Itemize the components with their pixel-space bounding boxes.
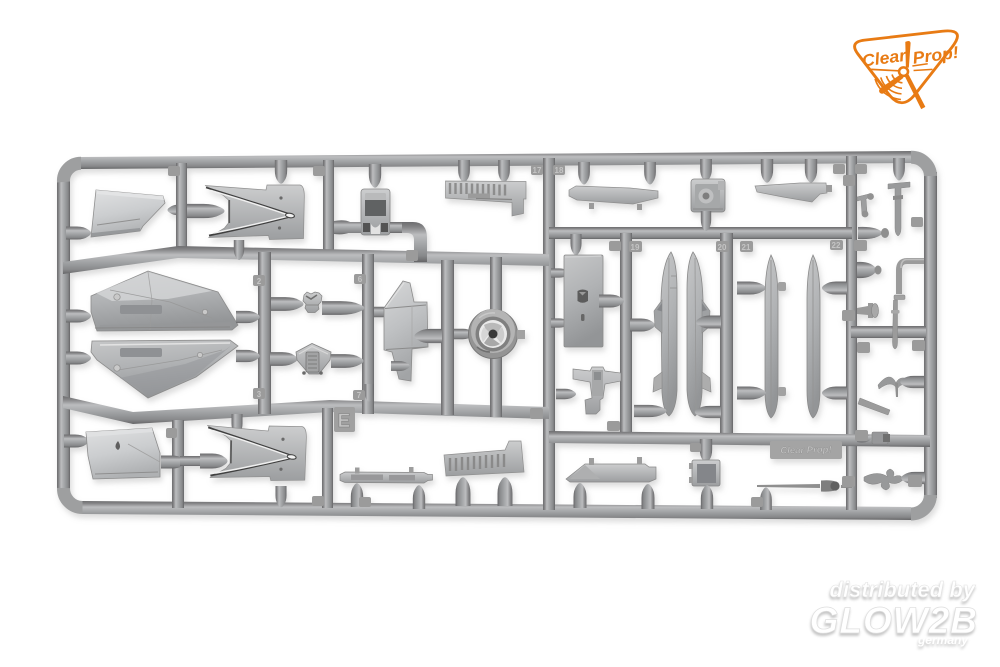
svg-text:6: 6 <box>358 275 363 284</box>
svg-text:distributed by: distributed by <box>830 577 977 602</box>
svg-text:2: 2 <box>257 277 262 286</box>
svg-text:22: 22 <box>832 241 841 250</box>
svg-text:20: 20 <box>718 243 727 252</box>
svg-text:17: 17 <box>533 166 542 175</box>
svg-text:7: 7 <box>357 391 362 400</box>
svg-text:Clear Prop!: Clear Prop! <box>780 445 831 457</box>
svg-text:18: 18 <box>555 166 564 175</box>
svg-text:germany: germany <box>917 633 969 647</box>
svg-text:E: E <box>338 411 351 432</box>
svg-text:21: 21 <box>742 243 751 252</box>
svg-text:3: 3 <box>257 390 262 399</box>
svg-text:19: 19 <box>631 243 640 252</box>
